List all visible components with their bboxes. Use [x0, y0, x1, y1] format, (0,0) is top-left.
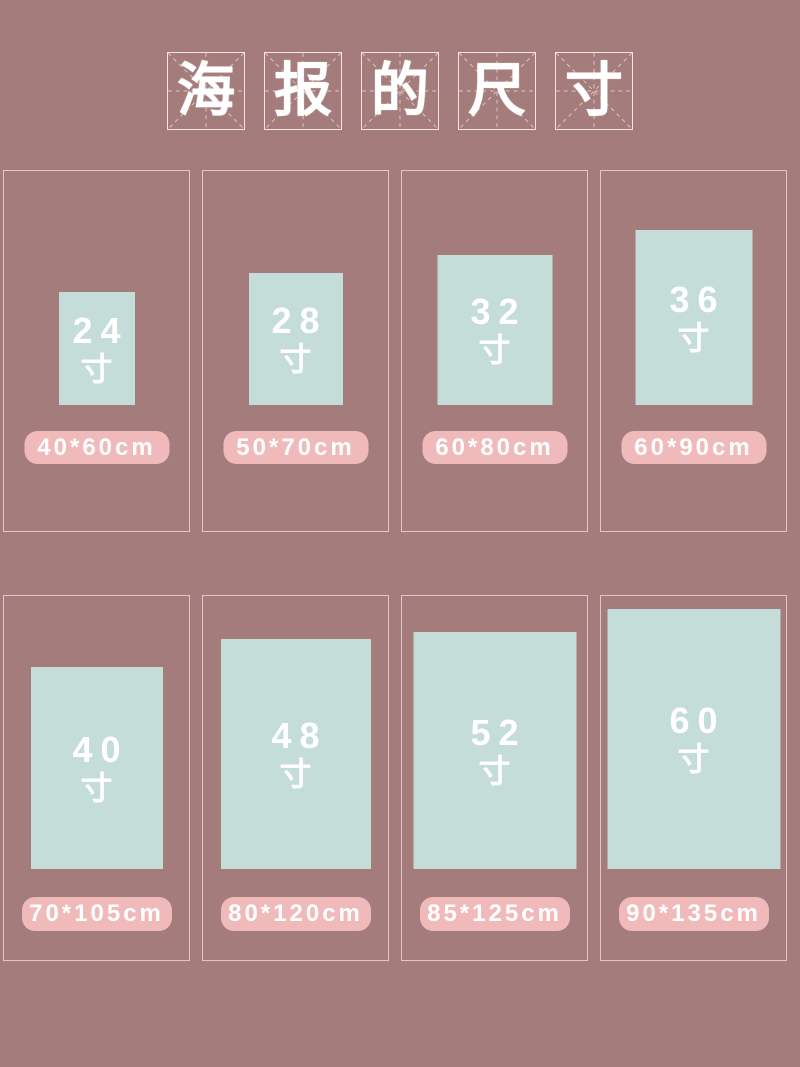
title-char: 海: [168, 53, 244, 129]
page-title: 海 报 的 尺: [0, 52, 800, 130]
cm-size-badge: 85*125cm: [420, 897, 570, 931]
title-char-box: 报: [264, 52, 342, 130]
inch-unit-label: 寸: [478, 755, 510, 787]
poster-size-card: 28 寸 50*70cm: [202, 170, 389, 532]
poster-size-card: 36 寸 60*90cm: [600, 170, 787, 532]
title-char: 报: [265, 53, 341, 129]
title-char-box: 海: [167, 52, 245, 130]
poster-size-card: 52 寸 85*125cm: [401, 595, 588, 961]
cm-size-badge: 60*80cm: [422, 431, 567, 464]
poster-size-infographic: { "page": { "background": "#a47c7c", "re…: [0, 0, 800, 1067]
inch-label: 48: [263, 718, 327, 754]
title-char-box: 尺: [458, 52, 536, 130]
cm-size-badge: 90*135cm: [619, 897, 769, 931]
title-char-box: 寸: [555, 52, 633, 130]
cm-size-badge: 40*60cm: [24, 431, 169, 464]
poster-preview-rect: 28 寸: [249, 273, 343, 405]
poster-preview-rect: 48 寸: [221, 639, 371, 869]
inch-label: 52: [462, 715, 526, 751]
inch-unit-label: 寸: [279, 758, 311, 790]
inch-unit-label: 寸: [478, 334, 510, 366]
inch-unit-label: 寸: [80, 772, 112, 804]
poster-size-card: 40 寸 70*105cm: [3, 595, 190, 961]
inch-label: 28: [263, 303, 327, 339]
inch-label: 24: [64, 313, 128, 349]
title-char: 尺: [459, 53, 535, 129]
inch-unit-label: 寸: [80, 353, 112, 385]
poster-preview-rect: 60 寸: [607, 609, 780, 869]
size-row-bottom: 40 寸 70*105cm 48 寸 80*120cm 52 寸 85*125c…: [3, 595, 787, 961]
poster-size-card: 48 寸 80*120cm: [202, 595, 389, 961]
inch-label: 36: [661, 282, 725, 318]
cm-size-badge: 70*105cm: [22, 897, 172, 931]
cm-size-badge: 60*90cm: [621, 431, 766, 464]
poster-preview-rect: 24 寸: [59, 292, 135, 405]
poster-preview-rect: 36 寸: [635, 230, 752, 405]
cm-size-badge: 50*70cm: [223, 431, 368, 464]
inch-unit-label: 寸: [279, 343, 311, 375]
title-char: 寸: [556, 53, 632, 129]
inch-unit-label: 寸: [677, 743, 709, 775]
poster-size-card: 60 寸 90*135cm: [600, 595, 787, 961]
size-row-top: 24 寸 40*60cm 28 寸 50*70cm 32 寸 60*80cm 3…: [3, 170, 787, 532]
inch-label: 40: [64, 732, 128, 768]
poster-preview-rect: 32 寸: [437, 255, 552, 405]
inch-unit-label: 寸: [677, 322, 709, 354]
title-char: 的: [362, 53, 438, 129]
title-char-box: 的: [361, 52, 439, 130]
poster-size-card: 24 寸 40*60cm: [3, 170, 190, 532]
poster-preview-rect: 40 寸: [31, 667, 163, 869]
poster-preview-rect: 52 寸: [413, 632, 576, 869]
poster-size-card: 32 寸 60*80cm: [401, 170, 588, 532]
inch-label: 32: [462, 294, 526, 330]
cm-size-badge: 80*120cm: [221, 897, 371, 931]
inch-label: 60: [661, 703, 725, 739]
